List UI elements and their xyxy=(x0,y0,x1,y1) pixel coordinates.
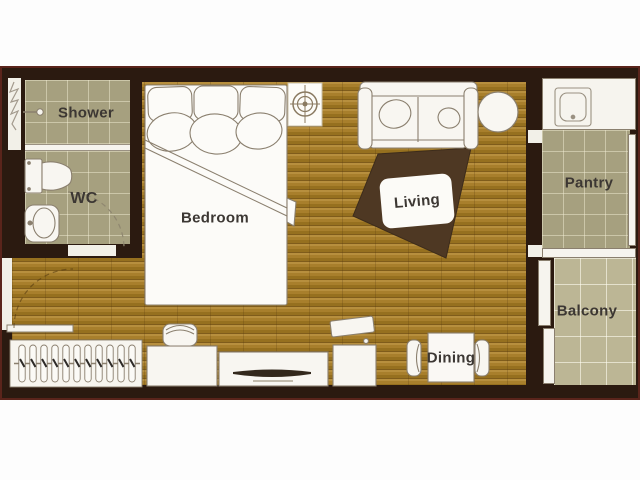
stool-icon xyxy=(163,324,197,346)
room-label-dining: Dining xyxy=(427,351,475,366)
duct-zigzag-icon xyxy=(10,82,18,130)
wardrobe-hangers-icon xyxy=(10,340,142,387)
room-label-wc: WC xyxy=(70,191,97,207)
kitchen-sink-icon xyxy=(555,88,591,126)
room-label-bedroom: Bedroom xyxy=(181,211,249,226)
door-swing-arc-icon xyxy=(14,269,73,328)
room-label-balcony: Balcony xyxy=(557,304,617,319)
dining-chair-icon xyxy=(407,340,421,376)
living-label-box: Living xyxy=(379,173,455,229)
shower-head-icon xyxy=(23,109,43,115)
dining-chair-icon xyxy=(475,340,489,376)
room-label-shower: Shower xyxy=(58,106,114,121)
sofa-icon xyxy=(358,82,478,149)
double-bed-icon xyxy=(144,85,296,305)
desk-icon xyxy=(147,346,217,386)
entry-door-icon xyxy=(7,325,73,332)
floorplan-page: Living Shower WC Bedroom Pantry Balcony … xyxy=(0,0,640,480)
top-load-appliance-icon xyxy=(330,316,376,386)
tv-console-icon xyxy=(219,352,328,386)
washbasin-icon xyxy=(25,205,59,242)
floorplan: Living Shower WC Bedroom Pantry Balcony … xyxy=(0,66,640,400)
room-label-pantry: Pantry xyxy=(565,176,614,191)
toilet-icon xyxy=(25,159,72,193)
room-label-living: Living xyxy=(393,192,440,211)
ceiling-light-icon xyxy=(288,83,322,126)
side-table-icon xyxy=(478,92,518,132)
